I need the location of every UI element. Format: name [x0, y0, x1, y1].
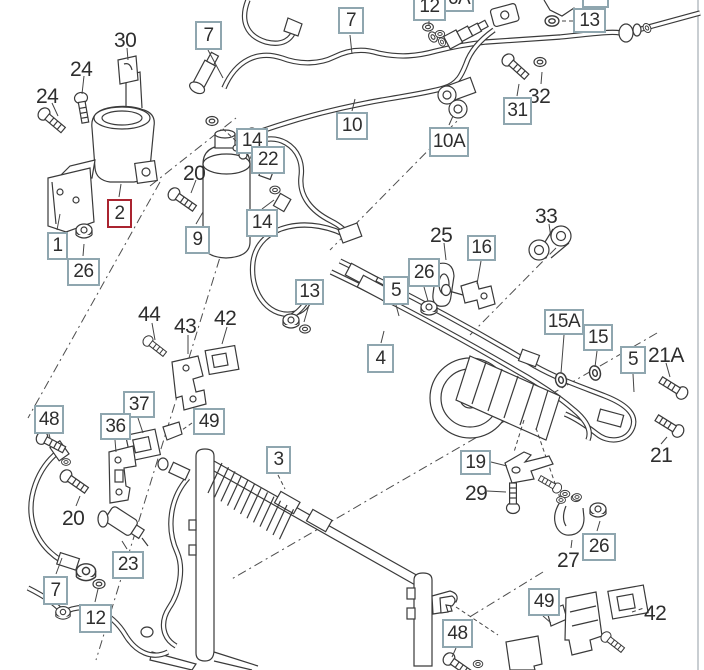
part-hotspot-7-30[interactable]: 7: [43, 576, 68, 605]
part-number-21A-7: 21A: [648, 344, 684, 368]
parts-diagram-canvas: 77126A813311010A14221491261354261615A155…: [0, 0, 704, 670]
part-hotspot-48-25[interactable]: 48: [34, 405, 64, 434]
part-hotspot-6A-3[interactable]: 6A: [444, 0, 474, 12]
part-hotspot-13-15[interactable]: 13: [295, 279, 324, 305]
part-hotspot-22-10[interactable]: 22: [251, 146, 285, 174]
part-hotspot-49-33[interactable]: 49: [528, 588, 560, 616]
part-number-44-11: 44: [138, 303, 160, 327]
part-hotspot-16-19[interactable]: 16: [467, 235, 496, 261]
part-number-33-6: 33: [535, 205, 557, 229]
part-hotspot-15-21[interactable]: 15: [583, 324, 613, 351]
part-hotspot-15A-20[interactable]: 15A: [544, 309, 584, 335]
part-number-24-2: 24: [36, 85, 58, 109]
part-hotspot-7-1[interactable]: 7: [338, 7, 364, 34]
part-number-25-5: 25: [430, 224, 452, 248]
part-hotspot-10-7[interactable]: 10: [336, 112, 368, 140]
part-hotspot-13-5[interactable]: 13: [573, 8, 606, 33]
part-hotspot-48-34[interactable]: 48: [442, 619, 473, 648]
part-hotspot-31-6[interactable]: 31: [503, 97, 532, 125]
part-number-21-8: 21: [650, 444, 672, 468]
part-hotspot-14-11[interactable]: 14: [246, 209, 278, 237]
part-hotspot-5-16[interactable]: 5: [383, 276, 409, 305]
part-hotspot-26-32[interactable]: 26: [582, 533, 616, 561]
part-number-20-14: 20: [62, 507, 84, 531]
part-hotspot-1-13[interactable]: 1: [47, 232, 68, 260]
part-number-42-13: 42: [214, 307, 236, 331]
part-number-27-10: 27: [557, 549, 579, 573]
part-hotspot-5-22[interactable]: 5: [620, 346, 646, 374]
part-number-29-9: 29: [465, 482, 487, 506]
part-hotspot-12-2[interactable]: 12: [413, 0, 446, 21]
part-hotspot-12-31[interactable]: 12: [79, 604, 112, 633]
part-number-42-15: 42: [644, 602, 666, 626]
part-hotspot-9-12[interactable]: 9: [185, 226, 210, 254]
part-hotspot-19-23[interactable]: 19: [460, 450, 491, 475]
part-hotspot-7-0[interactable]: 7: [195, 21, 222, 50]
part-hotspot-26-14[interactable]: 26: [67, 258, 100, 286]
part-hotspot-36-27[interactable]: 36: [100, 413, 131, 440]
part-hotspot-3-24[interactable]: 3: [266, 446, 291, 474]
part-number-24-1: 24: [70, 58, 92, 82]
part-hotspot-selected-2-0[interactable]: 2: [107, 199, 132, 228]
part-hotspot-23-29[interactable]: 23: [112, 551, 144, 579]
part-number-30-0: 30: [114, 29, 136, 53]
part-hotspot-26-18[interactable]: 26: [408, 258, 440, 287]
part-number-20-3: 20: [183, 162, 205, 186]
part-hotspot-8-4[interactable]: 8: [582, 0, 609, 8]
part-hotspot-49-28[interactable]: 49: [193, 408, 225, 435]
part-hotspot-4-17[interactable]: 4: [367, 344, 394, 373]
part-hotspot-10A-8[interactable]: 10A: [429, 127, 469, 157]
part-number-43-12: 43: [174, 315, 196, 339]
